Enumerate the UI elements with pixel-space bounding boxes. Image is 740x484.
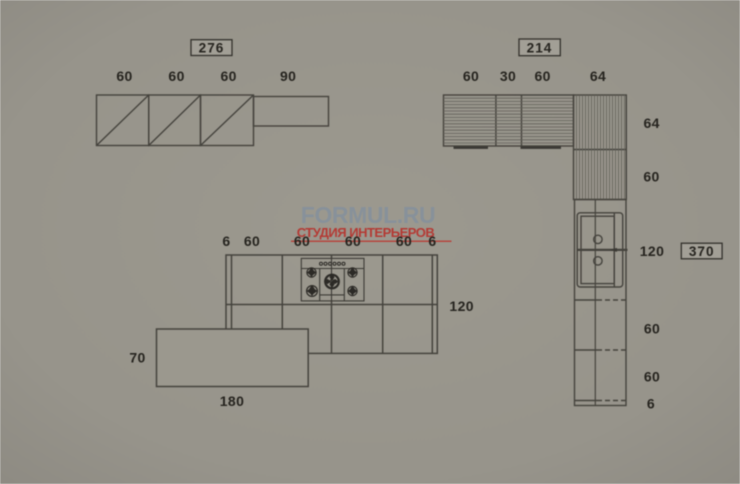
svg-text:214: 214 (527, 41, 553, 56)
svg-text:6: 6 (428, 233, 436, 249)
svg-text:120: 120 (640, 243, 665, 259)
svg-text:60: 60 (535, 68, 551, 84)
svg-text:FORMUL.RU: FORMUL.RU (301, 202, 435, 228)
svg-text:60: 60 (168, 68, 184, 84)
svg-text:60: 60 (294, 233, 310, 249)
svg-text:30: 30 (500, 68, 516, 84)
svg-text:60: 60 (396, 233, 412, 249)
svg-text:60: 60 (643, 169, 659, 185)
svg-text:СТУДИЯ ИНТЕРЬЕРОВ: СТУДИЯ ИНТЕРЬЕРОВ (297, 225, 435, 240)
svg-text:60: 60 (221, 68, 237, 84)
svg-text:6: 6 (647, 396, 655, 412)
svg-text:370: 370 (689, 244, 715, 259)
svg-text:60: 60 (644, 321, 660, 337)
svg-text:120: 120 (449, 298, 474, 314)
svg-text:6: 6 (222, 233, 230, 249)
svg-text:64: 64 (590, 68, 606, 84)
svg-text:64: 64 (644, 115, 660, 131)
svg-text:60: 60 (463, 68, 479, 84)
svg-text:60: 60 (345, 233, 361, 249)
svg-text:60: 60 (116, 68, 132, 84)
svg-text:180: 180 (220, 393, 245, 409)
svg-text:60: 60 (244, 233, 260, 249)
svg-text:60: 60 (644, 369, 660, 385)
svg-text:90: 90 (280, 68, 296, 84)
svg-text:70: 70 (129, 350, 145, 366)
svg-text:276: 276 (199, 41, 225, 56)
